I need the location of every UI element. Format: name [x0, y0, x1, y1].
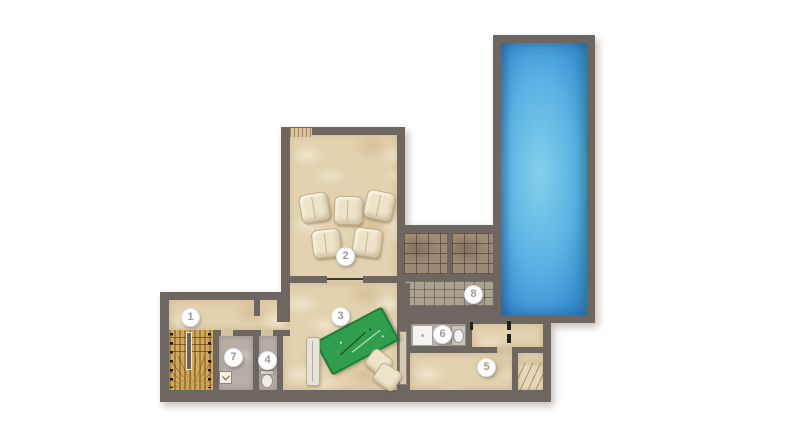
room-marker-5-label: 5 [483, 362, 489, 373]
floor-cushion-1 [298, 191, 332, 225]
room-divider-left [281, 276, 327, 283]
living-room-wall-left [281, 127, 290, 298]
room-marker-5: 5 [477, 358, 496, 377]
room-marker-8-label: 8 [470, 289, 476, 300]
billiard-ball-1 [340, 341, 343, 344]
floor-plan-page: { "markers": [ {"number": "1"}, {"number… [0, 0, 800, 432]
pool-wall-right [587, 35, 595, 323]
floor-plan: 1 2 3 4 5 6 7 8 [0, 0, 800, 432]
door-jamb-1 [507, 321, 511, 330]
terrace-deck-right [452, 233, 496, 274]
room-marker-6: 6 [433, 325, 452, 344]
room-marker-1-label: 1 [187, 312, 193, 323]
fireplace-hatch [290, 128, 312, 137]
hallway-corner-stub [277, 298, 290, 322]
outer-wall-bottom [160, 390, 550, 402]
terrace-deck-left [404, 233, 447, 274]
pool-wall-left [493, 35, 501, 323]
shower-icon [412, 325, 433, 346]
bedroom-floor [410, 353, 512, 390]
door-jamb-2 [507, 334, 511, 343]
washer-icon [219, 371, 232, 384]
stair-landing [518, 353, 543, 363]
floor-cushion-3 [362, 188, 396, 222]
room-marker-4: 4 [258, 351, 277, 370]
swimming-pool-water [501, 43, 587, 315]
washer-check-icon [222, 373, 230, 381]
stair-handrail [186, 332, 192, 370]
billiard-ball-2 [369, 328, 372, 331]
room-marker-4-label: 4 [264, 355, 270, 366]
room-marker-7: 7 [224, 348, 243, 367]
billiard-ball-3 [381, 335, 384, 338]
hallway-door-stub [254, 300, 260, 316]
sink-icon [453, 329, 464, 343]
room-marker-1: 1 [181, 308, 200, 327]
room-marker-7-label: 7 [230, 352, 236, 363]
door-threshold [327, 278, 363, 280]
room-marker-8: 8 [464, 285, 483, 304]
secondary-staircase [518, 363, 543, 390]
door-jamb-3 [470, 322, 473, 330]
stair-dots-right [208, 333, 211, 388]
room-marker-6-label: 6 [439, 329, 445, 340]
wc-wall-divider [277, 330, 290, 336]
stair-dots-left [170, 333, 173, 388]
room-marker-2-label: 2 [342, 251, 348, 262]
toilet-bowl-icon [261, 374, 273, 388]
room-marker-3: 3 [331, 307, 350, 326]
floor-cushion-2 [334, 196, 364, 226]
room-divider-right [363, 276, 405, 283]
pool-wall-top [493, 35, 595, 43]
room-marker-3-label: 3 [337, 311, 343, 322]
sideboard [306, 337, 320, 386]
living-room-wall-right [397, 133, 405, 225]
floor-cushion-5 [351, 226, 384, 259]
room-marker-2: 2 [336, 247, 355, 266]
